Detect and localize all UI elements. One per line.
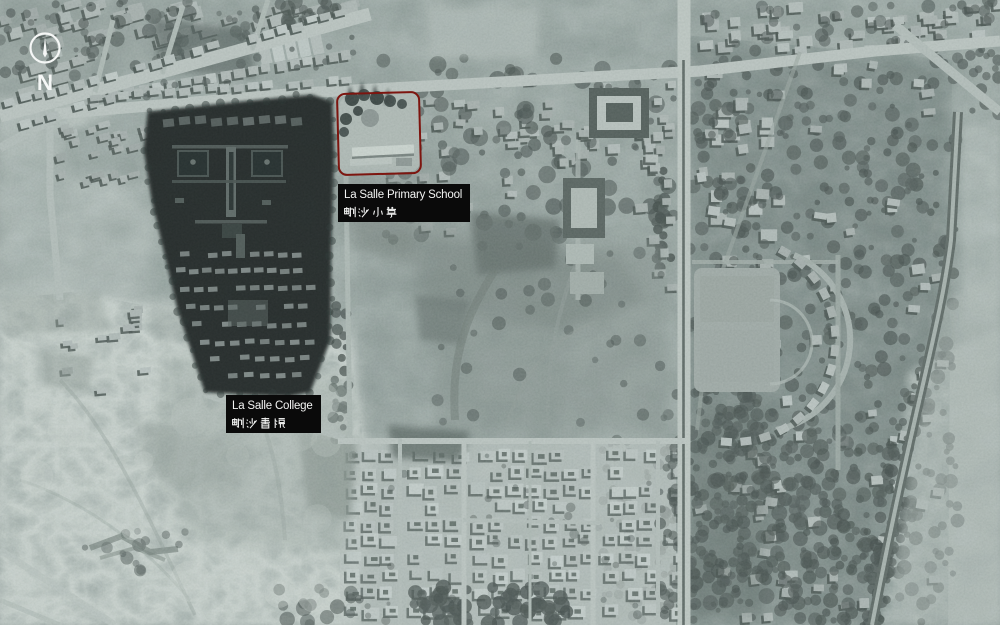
svg-text:N: N bbox=[37, 70, 53, 95]
